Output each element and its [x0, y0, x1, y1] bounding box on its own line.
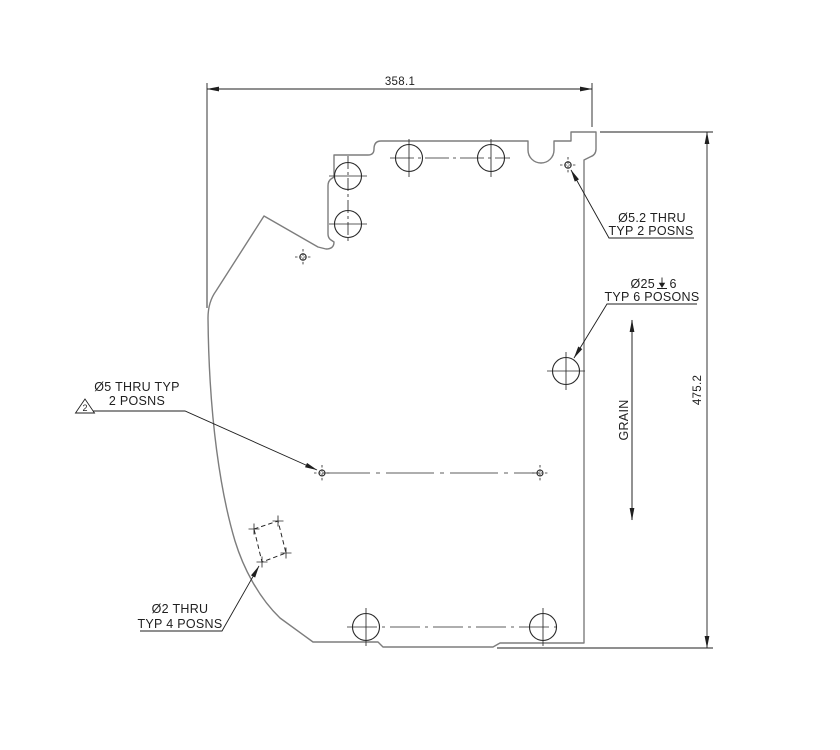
part-outline [208, 132, 596, 647]
counterbore-holes [335, 145, 580, 641]
callout-text: Ø5 THRU TYP [94, 380, 180, 394]
drawing-sheet: 358.1 475.2 GRAIN Ø5.2 THRU TYP 2 POSNS … [0, 0, 840, 750]
engineering-drawing: 358.1 475.2 GRAIN Ø5.2 THRU TYP 2 POSNS … [0, 0, 840, 750]
leader-line [574, 304, 697, 358]
callout-text: Ø5.2 THRU [618, 211, 686, 225]
depth-symbol-icon [657, 278, 667, 289]
callout-text: TYP 6 POSONS [604, 290, 699, 304]
callout-hole-25: Ø25 6 TYP 6 POSONS [574, 277, 700, 358]
flag-note-number: 2 [82, 403, 87, 413]
callout-text: TYP 4 POSNS [137, 617, 222, 631]
callout-text: 2 POSNS [109, 394, 165, 408]
callout-text: Ø25 [630, 277, 655, 291]
dimension-width: 358.1 [207, 76, 592, 308]
callout-text: Ø2 THRU [152, 602, 209, 616]
callout-hole-2: Ø2 THRU TYP 4 POSNS [137, 566, 259, 631]
dimension-height: 475.2 [497, 132, 713, 648]
small-holes [295, 157, 576, 481]
dimension-height-value: 475.2 [692, 375, 704, 405]
grain-direction: GRAIN [617, 320, 632, 520]
callout-text: TYP 2 POSNS [608, 224, 693, 238]
grain-label: GRAIN [617, 399, 631, 440]
callout-text: 6 [670, 277, 677, 291]
dimension-width-value: 358.1 [385, 76, 415, 88]
extension-line [207, 83, 592, 308]
flag-note-triangle: 2 [76, 399, 95, 413]
extension-line [497, 132, 713, 648]
callout-hole-5-2: Ø5.2 THRU TYP 2 POSNS [571, 170, 694, 238]
centerlines [322, 139, 585, 646]
hidden-hole-pattern [249, 516, 292, 568]
leader-line [93, 411, 317, 470]
callout-hole-5: Ø5 THRU TYP 2 POSNS 2 [76, 380, 318, 470]
